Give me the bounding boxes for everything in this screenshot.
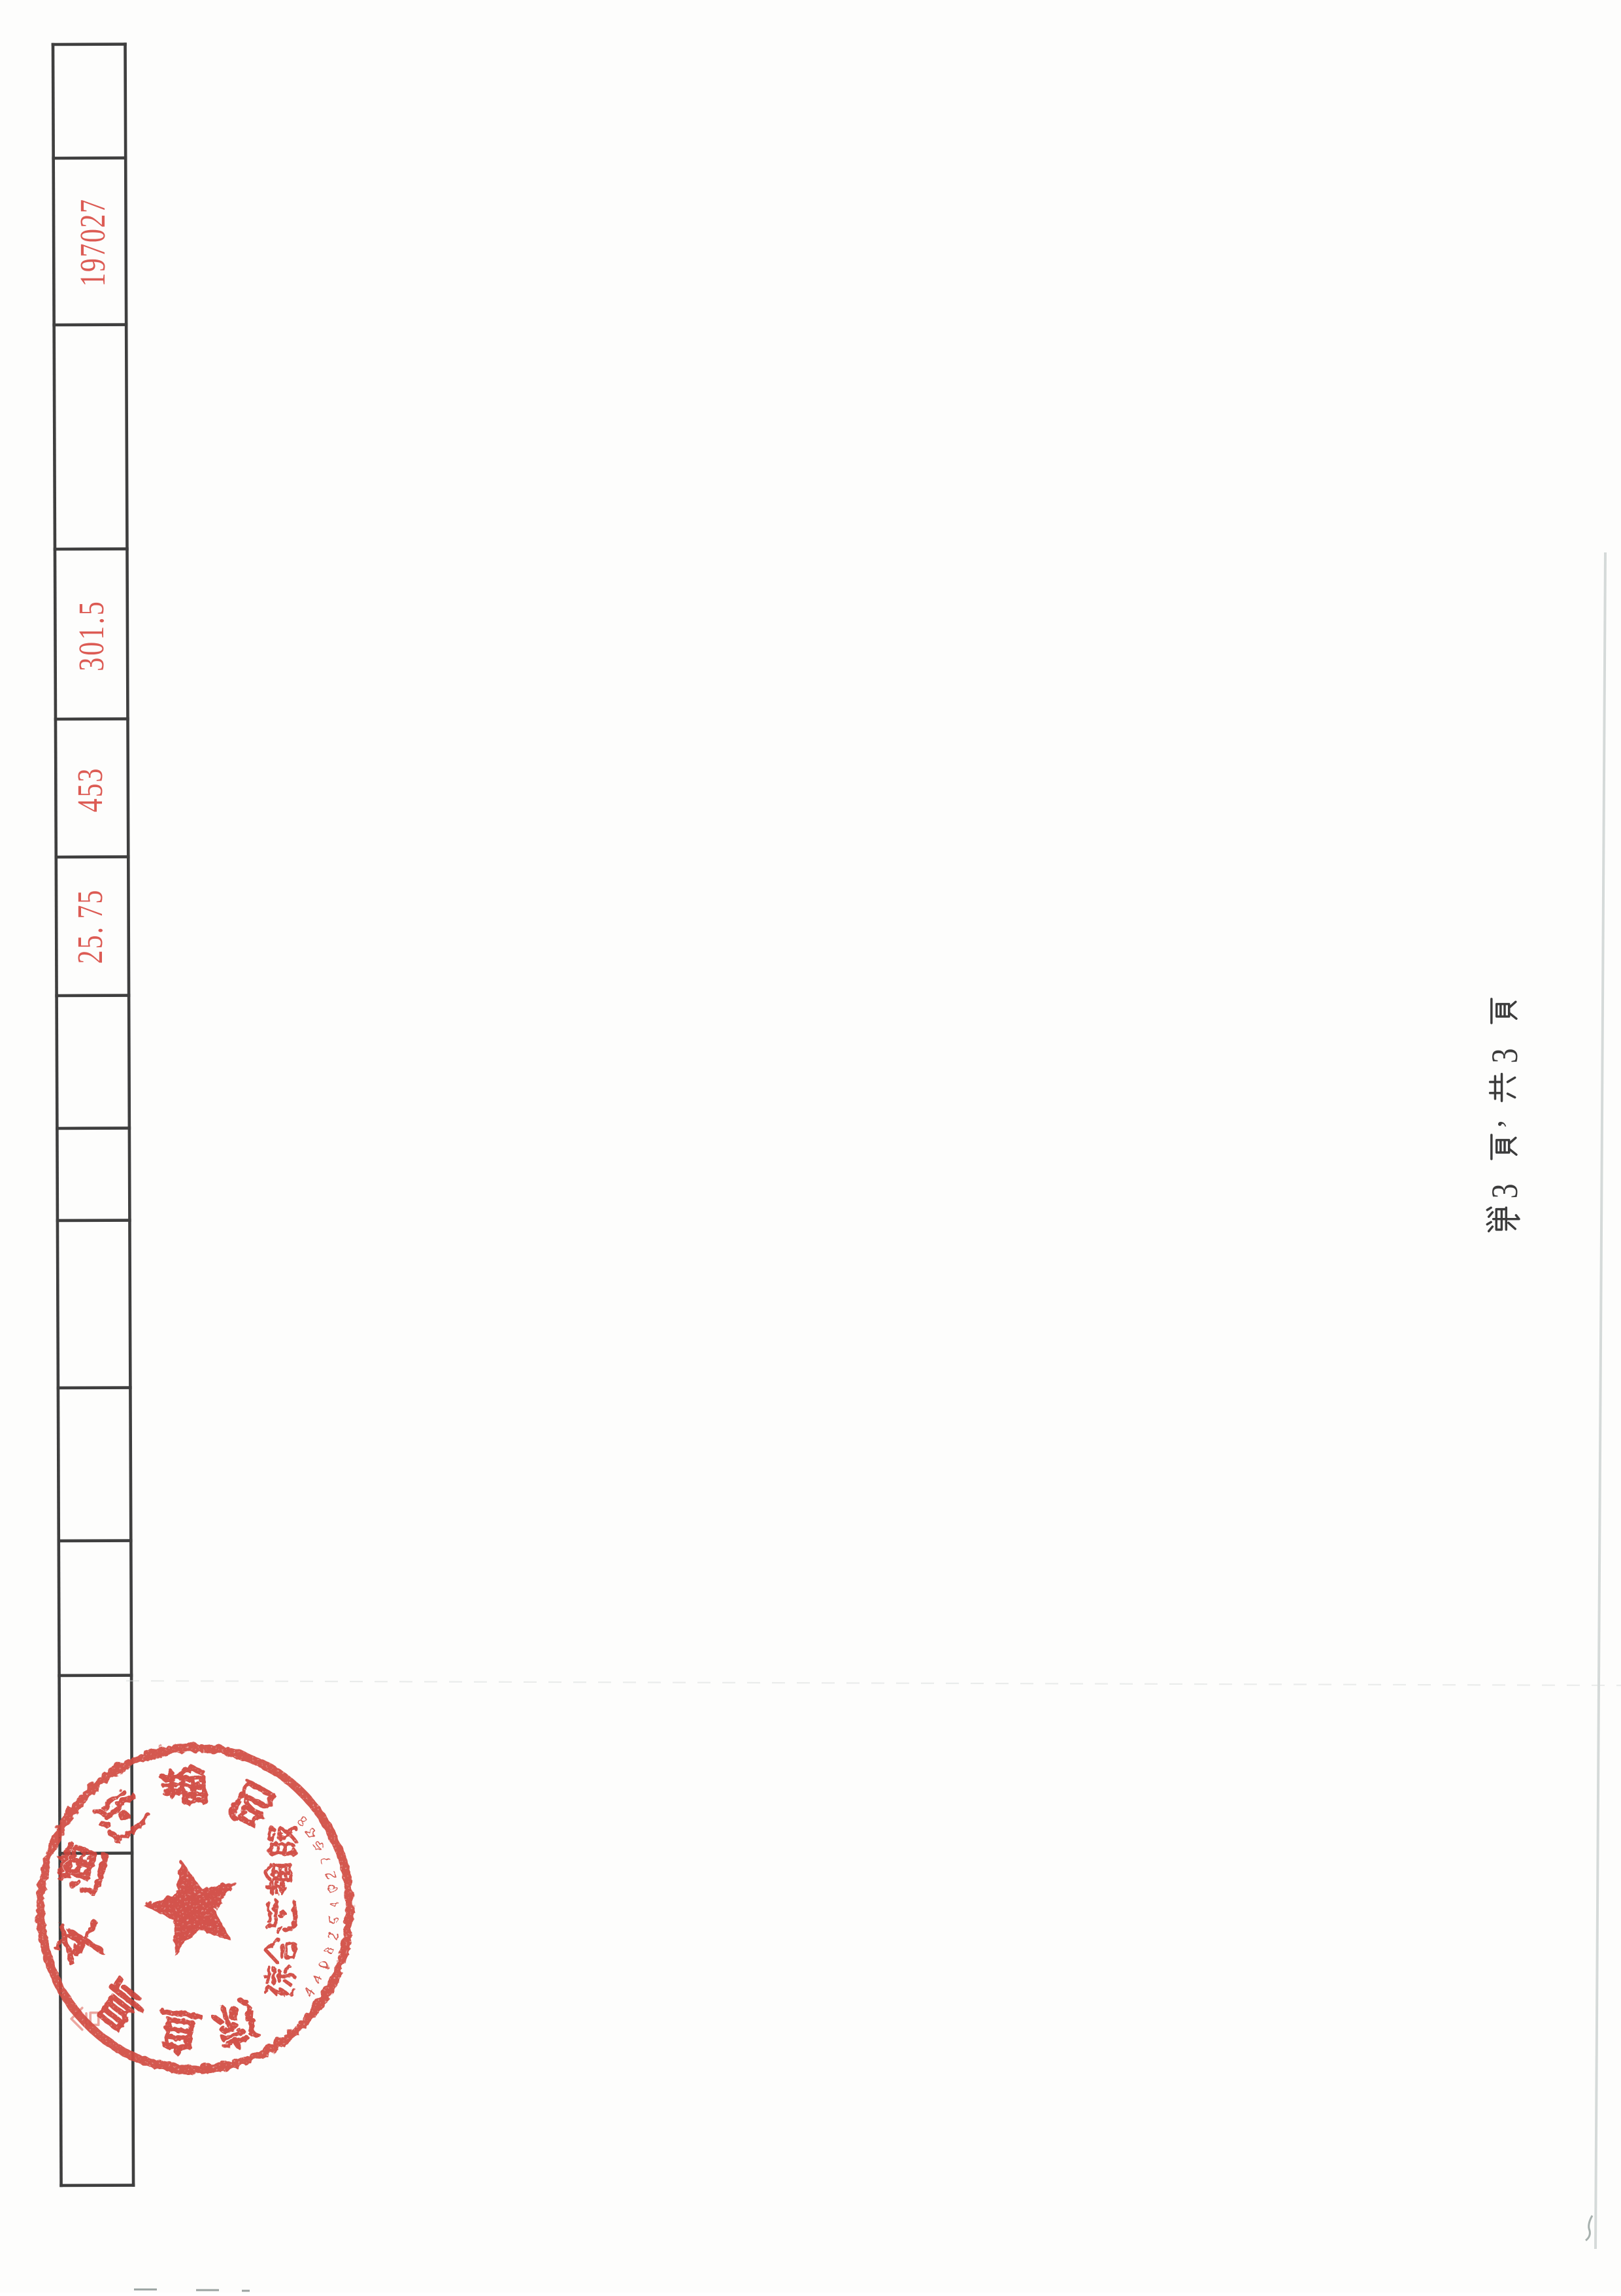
svg-text:453: 453 — [71, 768, 110, 813]
svg-text:4: 4 — [326, 1899, 341, 1908]
svg-text:3: 3 — [1485, 1049, 1526, 1064]
svg-text:25. 75: 25. 75 — [71, 889, 110, 964]
svg-text:197027: 197027 — [73, 199, 113, 287]
svg-text:5: 5 — [326, 1914, 341, 1923]
svg-text:3: 3 — [1485, 1184, 1526, 1199]
svg-text:,: , — [1474, 1120, 1509, 1128]
svg-text:301.5: 301.5 — [72, 599, 112, 671]
